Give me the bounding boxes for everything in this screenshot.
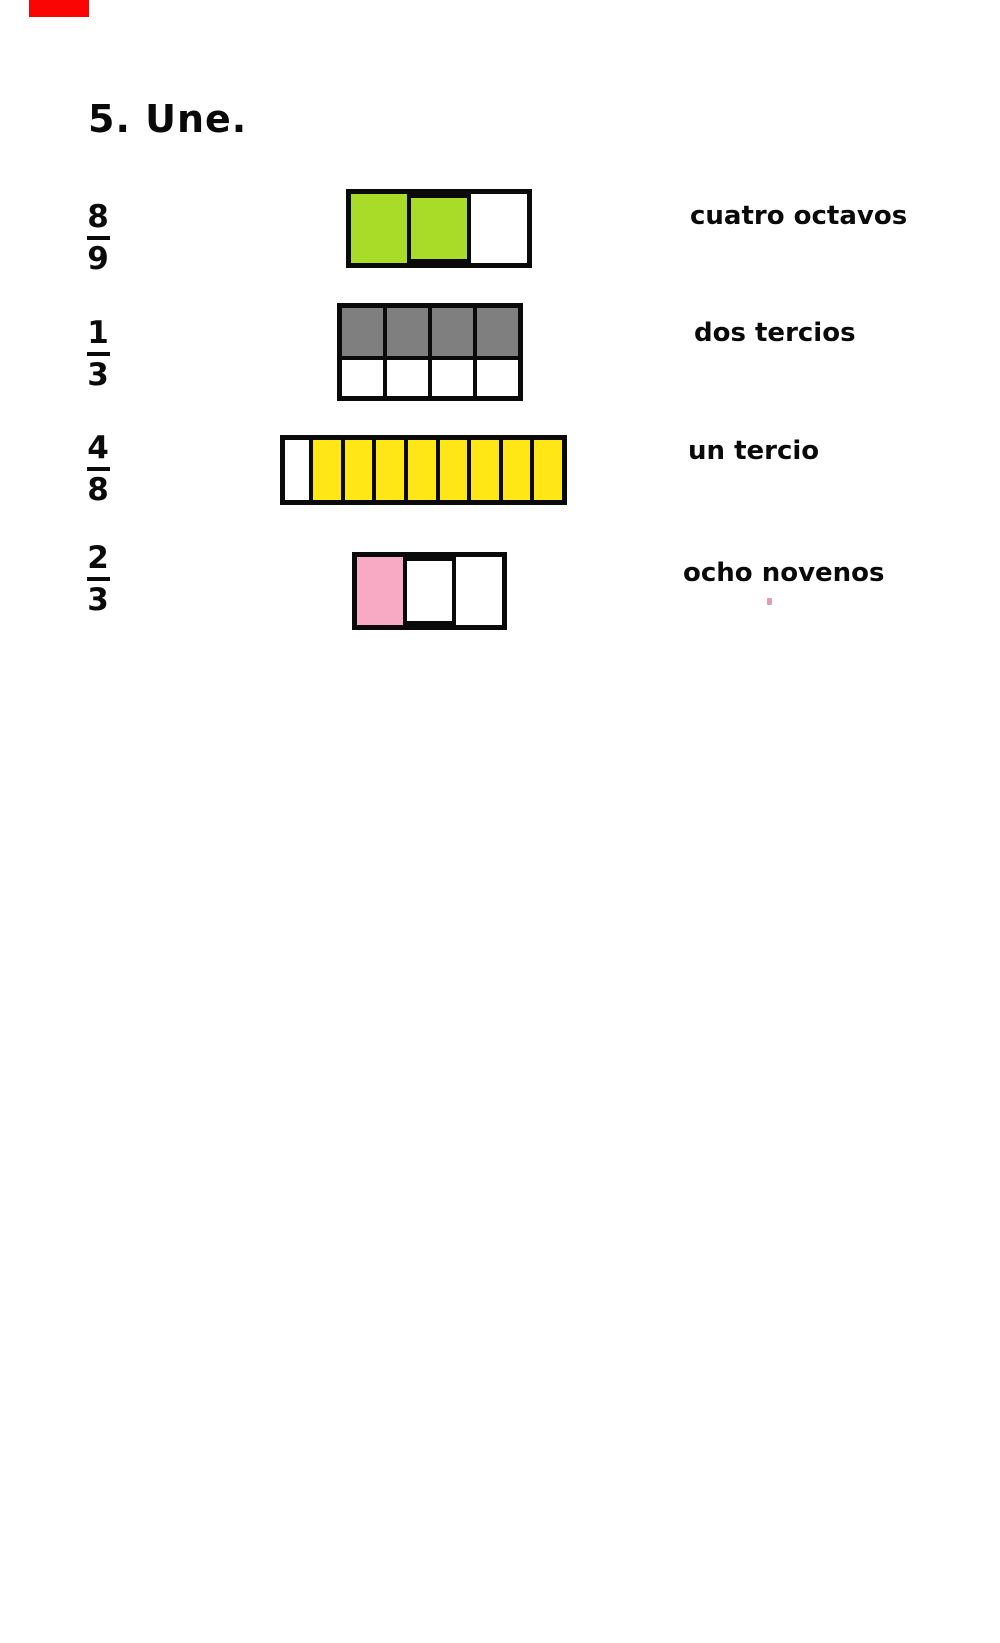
fraction-line xyxy=(87,236,110,240)
bar-cell xyxy=(357,557,403,625)
stray-pink-mark xyxy=(767,598,772,605)
bar-cell xyxy=(477,308,518,356)
match-label-un-tercio[interactable]: un tercio xyxy=(688,436,819,466)
bar-cell xyxy=(376,440,404,500)
fraction-numerator: 4 xyxy=(76,433,120,464)
fraction-eight-ninths[interactable]: 8 9 xyxy=(76,202,120,275)
bar-cell xyxy=(345,440,373,500)
fraction-denominator: 3 xyxy=(76,360,120,391)
bar-row xyxy=(342,308,518,356)
page-break-marker xyxy=(29,0,89,17)
bar-row xyxy=(357,557,502,625)
bar-row xyxy=(351,194,527,263)
bar-cell xyxy=(477,360,518,396)
fraction-one-third[interactable]: 1 3 xyxy=(76,318,120,391)
bar-cell xyxy=(534,440,562,500)
bar-cell xyxy=(351,194,407,263)
bar-cell xyxy=(342,308,383,356)
bar-row xyxy=(342,360,518,396)
bar-cell xyxy=(285,440,309,500)
bar-cell xyxy=(440,440,468,500)
fraction-denominator: 8 xyxy=(76,475,120,506)
match-label-ocho-novenos[interactable]: ocho novenos xyxy=(683,558,885,588)
bar-cell xyxy=(408,440,436,500)
bar-cell xyxy=(387,308,428,356)
worksheet-page: 5. Une. 8 9 1 3 4 8 2 3 cuatro octavos d… xyxy=(0,0,1000,1643)
bar-row xyxy=(285,440,562,500)
fraction-line xyxy=(87,352,110,356)
fraction-four-eighths[interactable]: 4 8 xyxy=(76,433,120,506)
bar-cell xyxy=(407,557,453,625)
bar-cell xyxy=(411,194,467,263)
fraction-bar-four-eighths xyxy=(337,303,523,401)
bar-cell xyxy=(387,360,428,396)
fraction-line xyxy=(87,577,110,581)
fraction-numerator: 2 xyxy=(76,543,120,574)
fraction-denominator: 3 xyxy=(76,585,120,616)
fraction-line xyxy=(87,467,110,471)
bar-cell xyxy=(432,360,473,396)
fraction-bar-one-third xyxy=(352,552,507,630)
fraction-two-thirds[interactable]: 2 3 xyxy=(76,543,120,616)
fraction-denominator: 9 xyxy=(76,244,120,275)
fraction-bar-two-thirds xyxy=(346,189,532,268)
bar-cell xyxy=(471,440,499,500)
fraction-numerator: 1 xyxy=(76,318,120,349)
bar-cell xyxy=(456,557,502,625)
bar-cell xyxy=(503,440,531,500)
exercise-title: 5. Une. xyxy=(88,97,247,141)
match-label-dos-tercios[interactable]: dos tercios xyxy=(694,318,856,348)
bar-cell xyxy=(471,194,527,263)
bar-cell xyxy=(342,360,383,396)
bar-cell xyxy=(432,308,473,356)
bar-cell xyxy=(313,440,341,500)
fraction-numerator: 8 xyxy=(76,202,120,233)
match-label-cuatro-octavos[interactable]: cuatro octavos xyxy=(690,201,907,231)
fraction-bar-eight-ninths xyxy=(280,435,567,505)
